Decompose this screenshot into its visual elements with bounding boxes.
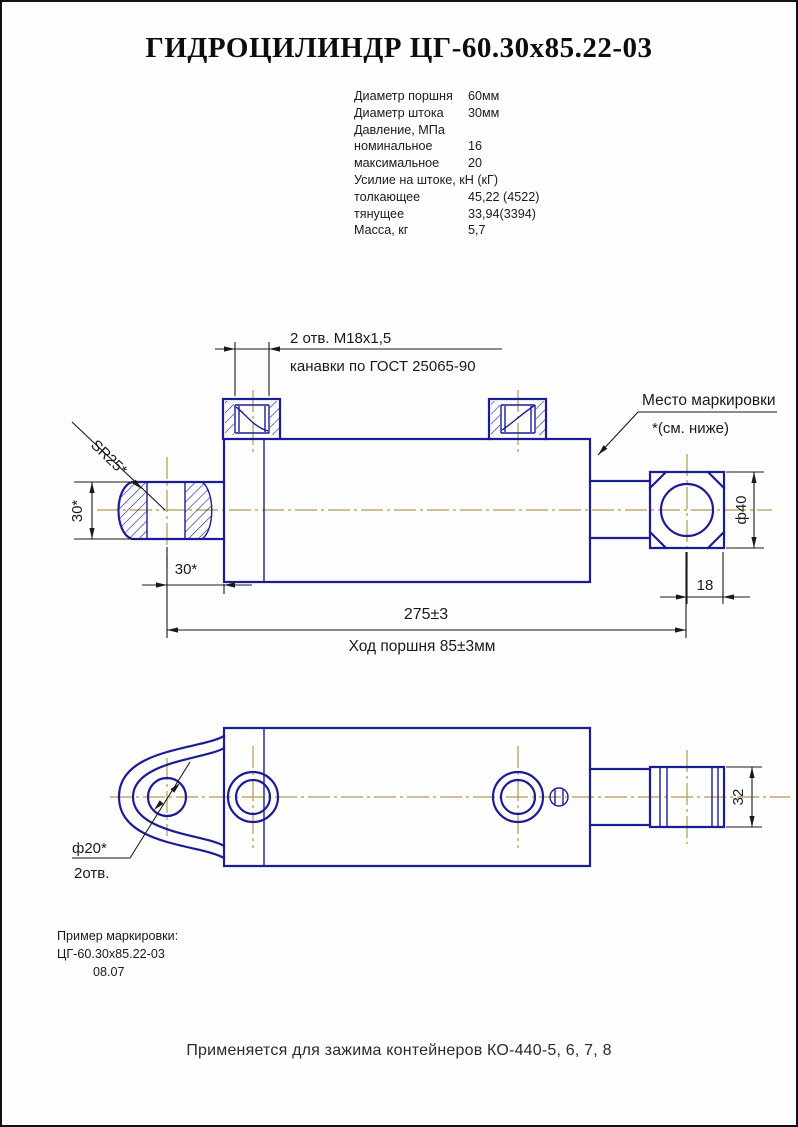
sphere-radius-label: SR25* [87, 437, 130, 479]
overall-length-label: 275±3 [404, 606, 448, 623]
marking-note-line2: *(см. ниже) [652, 420, 729, 437]
port1-break-line [236, 407, 268, 431]
eye-hole-qty-label: 2отв. [74, 865, 109, 882]
rod-end-length-label: 18 [697, 577, 714, 594]
marking-example-date: 08.07 [57, 963, 178, 981]
marking-note-line1: Место маркировки [642, 392, 776, 409]
port1-left-wall-hatch [225, 401, 234, 435]
application-note: Применяется для зажима контейнеров КО-44… [2, 1042, 796, 1060]
eye-hole-dia-label: ф20* [72, 840, 107, 857]
piston-stroke-label: Ход поршня 85±3мм [349, 638, 496, 655]
dimension-arrowheads [89, 346, 756, 827]
marking-example: Пример маркировки: ЦГ-60.30х85.22-03 08.… [57, 927, 178, 981]
port1-right-wall-hatch [270, 401, 279, 435]
port-note-line2: канавки по ГОСТ 25065-90 [290, 358, 476, 375]
dimension-texts: 2 отв. М18х1,5 канавки по ГОСТ 25065-90 … [69, 330, 776, 882]
rod-end-dia-label: ф40 [733, 495, 750, 524]
rod-end-width-label: 32 [730, 789, 747, 806]
marking-example-code: ЦГ-60.30х85.22-03 [57, 945, 178, 963]
port2-right-wall-hatch [536, 401, 545, 435]
section-hatching [119, 401, 546, 539]
port-note-ext [235, 342, 269, 396]
eye-height-label: 30* [69, 500, 86, 523]
main-contours [119, 399, 725, 866]
eye-offset-label: 30* [175, 561, 198, 578]
port-note-line1: 2 отв. М18х1,5 [290, 330, 391, 347]
marking-example-caption: Пример маркировки: [57, 927, 178, 945]
drawing-sheet: ГИДРОЦИЛИНДР ЦГ-60.30х85.22-03 Диаметр п… [0, 0, 798, 1127]
port2-left-wall-hatch [491, 401, 500, 435]
